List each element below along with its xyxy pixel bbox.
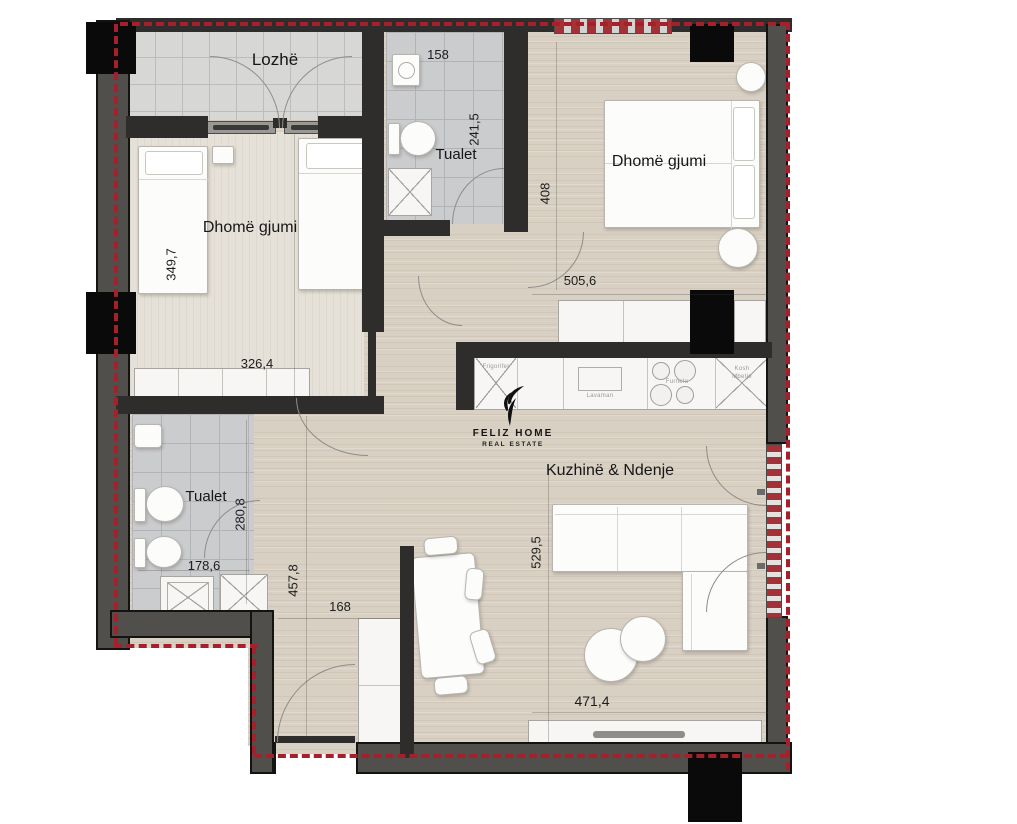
sofa-cushion-divider [681,507,682,571]
dresser [558,300,692,344]
dim-bedroom-right-height: 408 [538,164,553,224]
wall-partition-center [362,18,384,332]
dim-living-width: 471,4 [564,693,620,709]
dim-bedroom-left-width: 326,4 [229,356,285,371]
bed-pillow [733,165,755,219]
column [690,290,734,354]
exterior-notch [0,648,248,824]
room-label-toilet-top: Tualet [424,146,488,163]
stove-label: Furnela [648,379,706,385]
bed-pillow [145,151,203,175]
column [86,22,136,74]
dimension-line [278,618,400,619]
bed-pillow [733,107,755,161]
room-label-bedroom-left: Dhomë gjumi [197,219,303,237]
coffee-table [620,616,666,662]
boundary-top [120,22,788,26]
stove: Furnela [648,358,706,408]
wall-dining-divider [400,546,414,758]
sofa-cushion-divider [617,507,618,571]
wall-loggia-bottom-left [126,116,208,138]
dim-bedroom-left-height: 349,7 [164,235,179,295]
toilet-tank [388,123,400,155]
stove-burner [676,386,694,404]
cabinet-label-line1: Kosh [716,366,768,372]
bed-sheet-line [139,179,209,180]
chaise-line [691,574,692,650]
dim-living-height: 529,5 [529,523,544,583]
dining-chair [433,675,468,696]
bidet-tank [134,538,146,568]
dim-toilet-bottom-width: 178,6 [176,558,232,573]
sofa [552,504,748,572]
stove-burner [652,362,670,380]
dim-toilet-bottom-height: 280,8 [233,485,248,545]
room-label-bedroom-right: Dhomë gjumi [603,153,715,171]
dimension-line [306,416,307,738]
wardrobe [134,368,310,398]
kitchen-sink: Lavaman [568,362,632,406]
room-label-toilet-bottom: Tualet [174,488,238,505]
living-balcony-glazing [766,444,782,618]
bath-sink [134,424,162,448]
boundary-right [786,22,790,770]
dresser-divider [623,301,624,345]
tv [593,731,685,738]
bed-pillow [306,143,370,169]
feliz-home-flame-icon [496,382,528,426]
room-label-loggia: Lozhë [240,50,310,70]
shower-tray-top [388,168,432,216]
wall-toilet-top-bottom [362,220,450,236]
wall-loggia-bottom-right [318,116,364,138]
round-stool [736,62,766,92]
dimension-line [532,712,768,713]
sink-label: Lavaman [568,393,632,399]
washer-drum [398,62,415,79]
sofa-back-line [555,514,747,515]
room-label-living: Kuzhinë & Ndenje [540,462,680,480]
sink-basin [578,367,622,391]
bedroom-right-window [554,18,672,34]
dimension-line [548,468,549,744]
column [86,292,136,354]
boundary-left [114,24,118,646]
boundary-bottom [254,754,788,758]
bed-headboard-line [731,101,732,229]
dim-hall-height: 457,8 [286,551,301,611]
dimension-line [294,134,295,396]
bedroom-left-door-leaf [368,332,376,398]
wall-toilet-top-right [504,18,528,232]
wall-right-upper [766,24,788,444]
counter-cabinet: Kosh Mbetje [716,358,768,408]
boundary-notch-vertical [252,646,256,754]
cabinet-label-line2: Mbetje [716,374,768,380]
dimension-line [556,42,557,290]
column [690,24,734,62]
entry-threshold [276,743,356,754]
toilet-tank [134,488,146,522]
hall-closet [358,618,402,752]
brand-tagline: REAL ESTATE [468,441,558,448]
dresser-small [734,300,766,344]
stove-burner [650,384,672,406]
dining-set [403,532,507,699]
counter-divider [563,357,564,409]
nightstand [212,146,234,164]
dining-chair [423,536,458,557]
brand-logo: FELIZ HOME REAL ESTATE [468,382,558,452]
dining-chair [464,567,485,600]
column [688,752,742,822]
dim-hall-width: 168 [318,599,362,614]
dim-toilet-top-width: 158 [416,47,460,62]
closet-divider [359,685,403,686]
round-stool [718,228,758,268]
floor-plan: Frigorifer Lavaman Furnela Kosh Mbetje [0,0,1017,824]
shower-drain-area [167,582,209,613]
boundary-notch-horizontal [114,644,258,648]
brand-name: FELIZ HOME [468,428,558,439]
dim-bedroom-right-width: 505,6 [552,273,608,288]
dimension-line [532,294,770,295]
fridge-label: Frigorifer [476,364,516,370]
